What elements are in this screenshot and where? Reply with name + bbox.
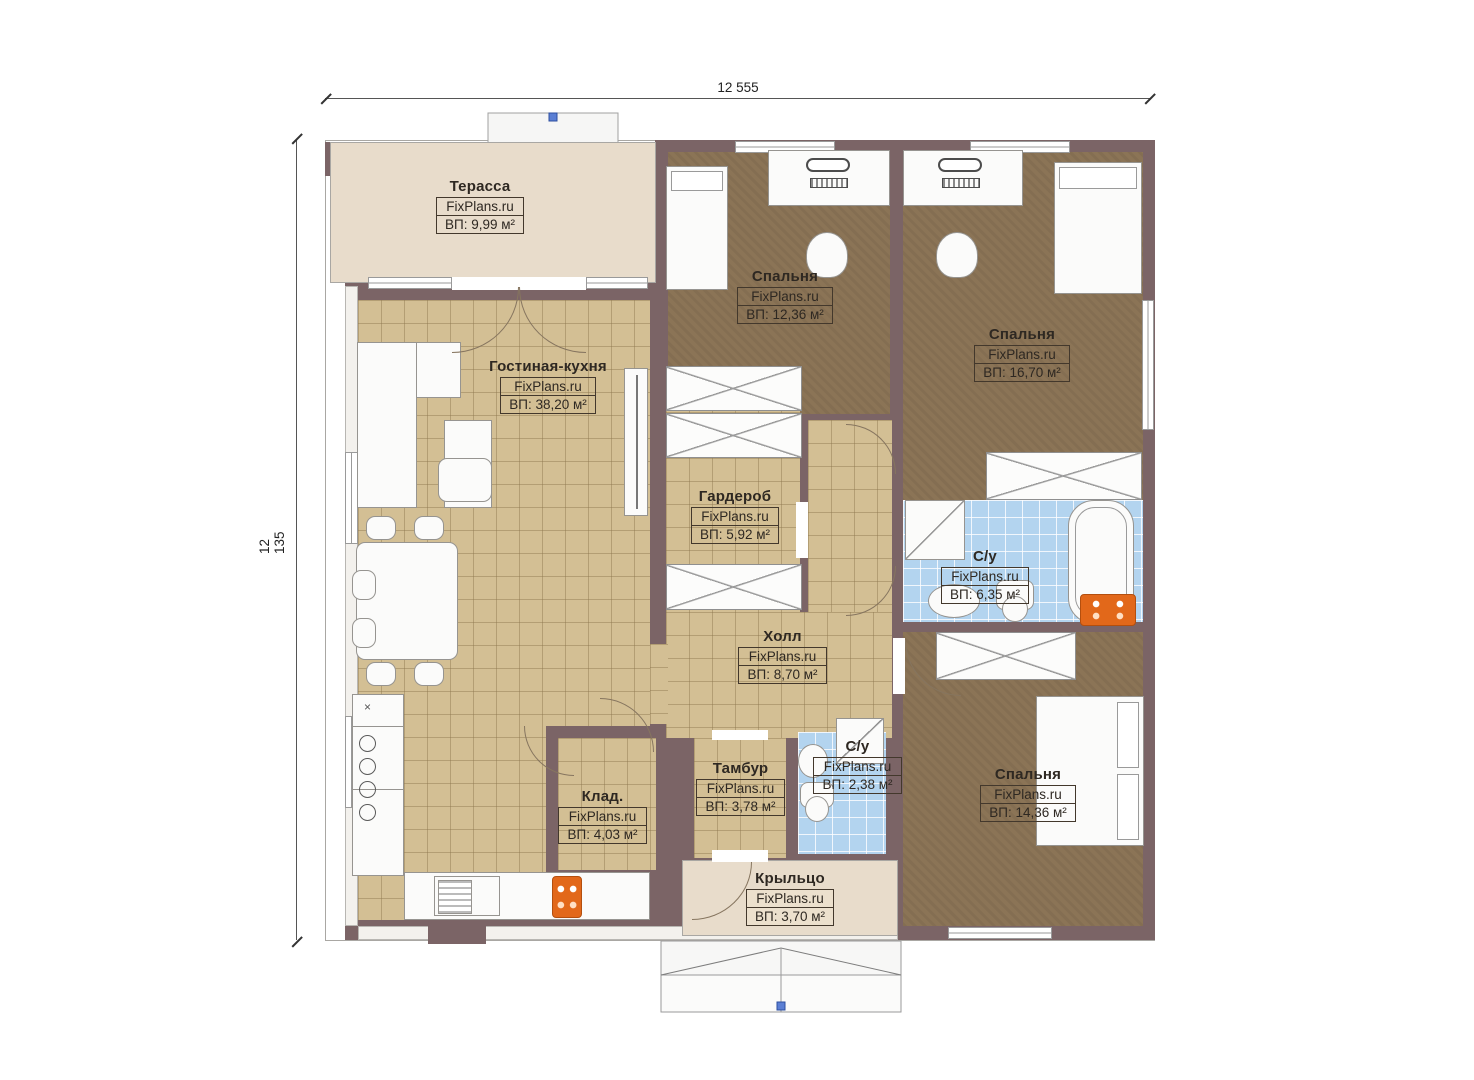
- room-area: ВП: 5,92 м²: [692, 525, 778, 543]
- room-name: Холл: [705, 628, 860, 645]
- room-name: Спальня: [948, 766, 1108, 783]
- radiator-icon: [1080, 594, 1136, 626]
- dimension-tick: [292, 936, 303, 947]
- room-label-bathroom-main: С/у FixPlans.ru ВП: 6,35 м²: [910, 548, 1060, 604]
- door-opening: [893, 638, 905, 694]
- room-area: ВП: 3,78 м²: [697, 797, 783, 815]
- sofa-icon: [357, 342, 417, 508]
- window: [368, 277, 452, 289]
- room-name: Терасса: [400, 178, 560, 195]
- keyboard-icon: [942, 178, 980, 188]
- chair-icon: [414, 516, 444, 540]
- window: [948, 927, 1052, 939]
- door-opening: [712, 850, 768, 862]
- floor-hall-passage: [650, 644, 668, 724]
- room-label-bedroom-top: Спальня FixPlans.ru ВП: 12,36 м²: [705, 268, 865, 324]
- brand-text: FixPlans.ru: [559, 808, 645, 825]
- wardrobe-icon: [666, 564, 802, 610]
- dimension-label-width: 12 555: [713, 80, 762, 95]
- room-area: ВП: 6,35 м²: [942, 585, 1028, 603]
- chair-icon: [366, 516, 396, 540]
- room-area: ВП: 16,70 м²: [975, 363, 1069, 381]
- room-name: С/у: [910, 548, 1060, 565]
- room-area: ВП: 12,36 м²: [738, 305, 832, 323]
- room-area: ВП: 3,70 м²: [747, 907, 833, 925]
- dimension-line: [325, 98, 1151, 99]
- brand-text: FixPlans.ru: [738, 288, 832, 305]
- room-label-bathroom-small: С/у FixPlans.ru ВП: 2,38 м²: [790, 738, 925, 794]
- dimension-top: 12 555: [325, 90, 1151, 110]
- brand-text: FixPlans.ru: [814, 758, 900, 775]
- brand-text: FixPlans.ru: [437, 198, 523, 215]
- chair-icon: [366, 662, 396, 686]
- bed-icon: [1054, 162, 1142, 294]
- window: [1142, 300, 1154, 430]
- room-label-bedroom-bottom: Спальня FixPlans.ru ВП: 14,36 м²: [948, 766, 1108, 822]
- room-label-hall: Холл FixPlans.ru ВП: 8,70 м²: [705, 628, 860, 684]
- dishwasher-icon: [438, 880, 472, 914]
- wall-bottom-post: [428, 924, 486, 944]
- brand-text: FixPlans.ru: [501, 378, 595, 395]
- door-opening: [712, 730, 768, 740]
- porch-steps: [660, 940, 902, 1014]
- room-name: Гардероб: [660, 488, 810, 505]
- room-area: ВП: 2,38 м²: [814, 775, 900, 793]
- window: [586, 277, 648, 289]
- room-name: С/у: [790, 738, 925, 755]
- room-name: Спальня: [705, 268, 865, 285]
- room-label-terrace: Терасса FixPlans.ru ВП: 9,99 м²: [400, 178, 560, 234]
- room-label-living-kitchen: Гостиная-кухня FixPlans.ru ВП: 38,20 м²: [468, 358, 628, 414]
- room-area: ВП: 9,99 м²: [437, 215, 523, 233]
- room-area: ВП: 4,03 м²: [559, 825, 645, 843]
- brand-text: FixPlans.ru: [747, 890, 833, 907]
- keyboard-icon: [810, 178, 848, 188]
- wardrobe-icon: [666, 366, 802, 411]
- dimension-left: 12 135: [288, 140, 308, 940]
- room-name: Крыльцо: [710, 870, 870, 887]
- floor-plan: 12 555 12 135: [0, 0, 1474, 1080]
- room-area: ВП: 38,20 м²: [501, 395, 595, 413]
- dimension-label-height: 12 135: [257, 522, 287, 558]
- brand-text: FixPlans.ru: [942, 568, 1028, 585]
- room-label-wardrobe: Гардероб FixPlans.ru ВП: 5,92 м²: [660, 488, 810, 544]
- room-area: ВП: 14,36 м²: [981, 803, 1075, 821]
- wardrobe-icon: [666, 413, 802, 458]
- room-name: Гостиная-кухня: [468, 358, 628, 375]
- brand-text: FixPlans.ru: [975, 346, 1069, 363]
- room-area: ВП: 8,70 м²: [739, 665, 825, 683]
- brand-text: FixPlans.ru: [739, 648, 825, 665]
- stove-icon: [352, 726, 404, 790]
- kitchen-x-mark: ×: [364, 700, 371, 714]
- office-chair-icon: [936, 232, 978, 278]
- radiator-icon: [552, 876, 582, 918]
- room-label-pantry: Клад. FixPlans.ru ВП: 4,03 м²: [530, 788, 675, 844]
- chair-icon: [352, 570, 376, 600]
- computer-icon: [806, 158, 850, 172]
- dimension-line: [296, 140, 297, 940]
- brand-text: FixPlans.ru: [981, 786, 1075, 803]
- chair-icon: [414, 662, 444, 686]
- chair-icon: [352, 618, 376, 648]
- brand-text: FixPlans.ru: [697, 780, 783, 797]
- room-name: Клад.: [530, 788, 675, 805]
- room-name: Спальня: [942, 326, 1102, 343]
- room-label-bedroom-right: Спальня FixPlans.ru ВП: 16,70 м²: [942, 326, 1102, 382]
- wardrobe-icon: [986, 452, 1142, 500]
- stove-burners: [353, 727, 403, 829]
- brand-text: FixPlans.ru: [692, 508, 778, 525]
- room-label-porch: Крыльцо FixPlans.ru ВП: 3,70 м²: [710, 870, 870, 926]
- dimension-tick: [292, 133, 303, 144]
- computer-icon: [938, 158, 982, 172]
- coffee-table-icon: [438, 458, 492, 502]
